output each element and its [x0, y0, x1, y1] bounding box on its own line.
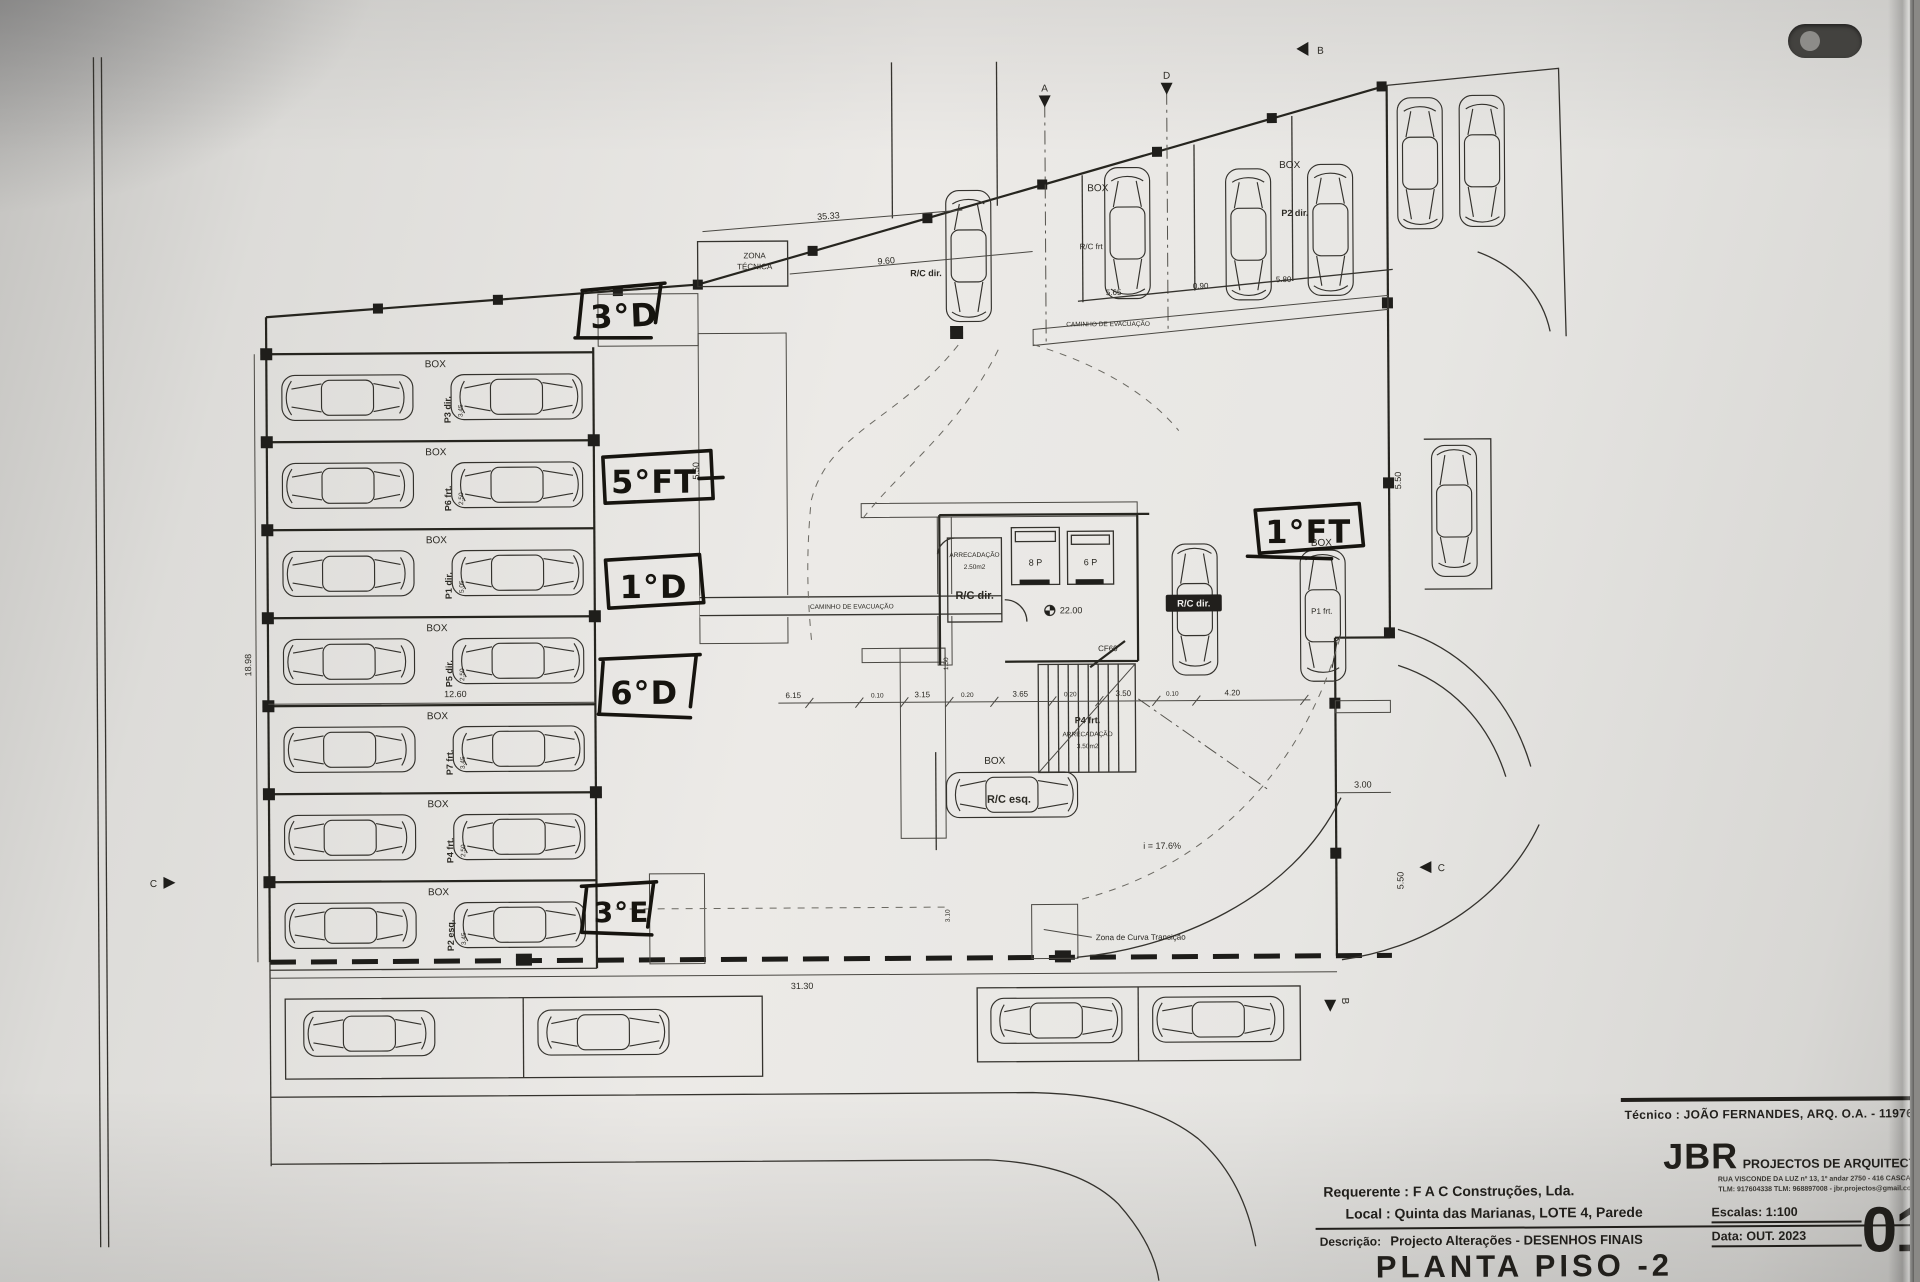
- svg-text:R/C dir.: R/C dir.: [955, 590, 994, 602]
- svg-text:12.60: 12.60: [444, 689, 467, 699]
- svg-text:R/C dir.: R/C dir.: [910, 268, 942, 278]
- svg-text:BOX: BOX: [984, 756, 1006, 767]
- scale-label: Escalas:: [1711, 1205, 1762, 1219]
- car-icon: [1226, 169, 1272, 300]
- svg-text:5.05: 5.05: [459, 580, 466, 593]
- lobby: 22.00 CF60: [1005, 599, 1125, 668]
- date-row: Data: OUT. 2023: [1712, 1229, 1862, 1248]
- svg-text:6 P: 6 P: [1084, 557, 1098, 567]
- car-icon: [282, 463, 413, 509]
- top-parking-block: R/C dir. BOX BOX R/C frt P2 dir. 5.65 0.…: [909, 68, 1566, 340]
- svg-text:18.98: 18.98: [243, 654, 253, 677]
- handwritten-1FT: 1°FT: [1247, 504, 1363, 560]
- svg-text:2.50: 2.50: [460, 844, 467, 857]
- svg-text:R/C frt: R/C frt: [1080, 242, 1104, 251]
- parking-row: BOX P7 frt. 3.45: [268, 704, 595, 776]
- svg-text:BOX: BOX: [428, 887, 450, 898]
- stairs: P4 frt. ARRECADAÇÃO 3.50m2: [1038, 664, 1136, 773]
- descricao-label: Descrição:: [1320, 1234, 1381, 1248]
- hole-punch: [1788, 24, 1862, 58]
- svg-text:3.45: 3.45: [460, 756, 467, 769]
- car-icon: [538, 1009, 669, 1055]
- svg-text:2.50m2: 2.50m2: [964, 564, 986, 571]
- photo-of-plan: ZONA TÉCNICA BOX P3 dir. 3.45 BOX P: [0, 0, 1920, 1282]
- floor-plan-drawing: ZONA TÉCNICA BOX P3 dir. 3.45 BOX P: [0, 0, 1920, 1282]
- svg-text:3.15: 3.15: [915, 690, 931, 699]
- car-icon: [452, 462, 583, 508]
- titleblock-tecnico: Técnico : JOÃO FERNANDES, ARQ. O.A. - 11…: [1621, 1096, 1917, 1122]
- car-icon: [284, 727, 415, 773]
- parking-row: BOX P3 dir. 3.45: [266, 352, 593, 424]
- descricao-row: Descrição: Projecto Alterações - DESENHO…: [1320, 1232, 1643, 1249]
- svg-text:3.45: 3.45: [458, 404, 465, 417]
- svg-text:3.00: 3.00: [1354, 779, 1372, 789]
- drive-guides: Zona de Curva Transição: [598, 343, 1342, 961]
- car-icon: [283, 639, 414, 685]
- svg-text:3°D: 3°D: [589, 295, 658, 336]
- svg-text:P1 dir.: P1 dir.: [444, 572, 454, 599]
- svg-text:5.65: 5.65: [1106, 288, 1122, 297]
- elevator-1: 8 P: [1011, 527, 1059, 584]
- svg-text:TÉCNICA: TÉCNICA: [737, 262, 773, 271]
- tecnico-name: JOÃO FERNANDES, ARQ.: [1684, 1107, 1838, 1122]
- car-icon: [284, 815, 415, 861]
- paper-curl-shadow: [1888, 0, 1914, 1282]
- titleblock-right: JBR PROJECTOS DE ARQUITECTURA RUA VISCON…: [1663, 1146, 1917, 1148]
- left-parking-block: BOX P3 dir. 3.45 BOX P6 frt. 2.50 BOX P1…: [260, 346, 603, 970]
- car-icon: [453, 726, 584, 772]
- svg-text:P3 dir.: P3 dir.: [442, 396, 452, 423]
- car-icon: [1153, 996, 1284, 1042]
- requerente-value: F A C Construções, Lda.: [1413, 1182, 1575, 1199]
- svg-text:0.10: 0.10: [871, 692, 884, 699]
- svg-text:B: B: [1317, 46, 1324, 57]
- svg-text:P7 frt.: P7 frt.: [445, 750, 455, 776]
- elevator-2: 6 P: [1067, 531, 1113, 584]
- svg-text:3.50: 3.50: [1116, 689, 1132, 698]
- svg-text:BOX: BOX: [425, 359, 447, 370]
- svg-text:0.20: 0.20: [1064, 691, 1077, 698]
- bottom-parking: [270, 986, 1302, 1282]
- svg-text:6°D: 6°D: [610, 674, 678, 712]
- svg-text:5.80: 5.80: [1276, 275, 1292, 284]
- svg-text:0.10: 0.10: [1166, 691, 1179, 698]
- local-value: Quinta das Marianas, LOTE 4, Parede: [1394, 1204, 1642, 1222]
- svg-text:B: B: [1339, 998, 1350, 1005]
- date-label: Data:: [1712, 1229, 1743, 1243]
- svg-text:ZONA: ZONA: [743, 251, 766, 260]
- handwritten-5FT: 5°FT: [603, 450, 723, 503]
- parking-row: BOX P1 dir. 5.05: [267, 528, 594, 600]
- svg-text:CAMINHO DE EVACUAÇÃO: CAMINHO DE EVACUAÇÃO: [1066, 319, 1150, 329]
- svg-text:BOX: BOX: [426, 535, 448, 546]
- svg-text:ARRECADAÇÃO: ARRECADAÇÃO: [949, 550, 999, 559]
- svg-text:Zona de Curva Transição: Zona de Curva Transição: [1096, 933, 1186, 943]
- parking-row: BOX P5 dir. 2.50: [268, 616, 595, 688]
- svg-text:R/C esq.: R/C esq.: [987, 794, 1031, 806]
- scale-row: Escalas: 1:100: [1711, 1205, 1861, 1224]
- car-icon: [1105, 167, 1151, 298]
- svg-text:8 P: 8 P: [1029, 557, 1043, 567]
- svg-text:C: C: [150, 879, 157, 890]
- svg-text:5.50: 5.50: [1393, 472, 1403, 490]
- car-icon: [1459, 95, 1505, 226]
- car-icon: [991, 998, 1122, 1044]
- svg-text:0.90: 0.90: [1193, 281, 1209, 290]
- parking-row: BOX P4 frt. 2.50: [269, 792, 596, 864]
- svg-text:P1 frt.: P1 frt.: [1311, 607, 1332, 616]
- handwritten-6D: 6°D: [598, 655, 700, 719]
- svg-text:P4 frt.: P4 frt.: [1075, 715, 1101, 725]
- svg-text:BOX: BOX: [427, 799, 449, 810]
- svg-text:ARRECADAÇÃO: ARRECADAÇÃO: [1062, 729, 1112, 738]
- svg-text:2.50: 2.50: [458, 492, 465, 505]
- svg-text:3°E: 3°E: [594, 896, 650, 929]
- drawing-sheet: ZONA TÉCNICA BOX P3 dir. 3.45 BOX P: [0, 0, 1920, 1282]
- car-icon: [454, 814, 585, 860]
- svg-text:3.65: 3.65: [1013, 690, 1029, 699]
- svg-text:P6 frt.: P6 frt.: [443, 486, 453, 512]
- ramp-hatching: [598, 289, 1392, 964]
- svg-text:C: C: [1438, 863, 1445, 874]
- car-icon: [454, 902, 585, 948]
- evacuation-corridor: CAMINHO DE EVACUAÇÃO CAMINHO DE EVACUAÇÃ…: [698, 319, 1152, 618]
- svg-text:P2 dir.: P2 dir.: [1281, 208, 1308, 218]
- local-label: Local :: [1345, 1205, 1390, 1221]
- local-row: Local : Quinta das Marianas, LOTE 4, Par…: [1345, 1204, 1642, 1222]
- descricao-value: Projecto Alterações - DESENHOS FINAIS: [1390, 1232, 1642, 1249]
- handwritten-3E: 3°E: [581, 882, 656, 935]
- svg-text:BOX: BOX: [425, 447, 447, 458]
- svg-text:6.15: 6.15: [786, 691, 802, 700]
- parking-row: BOX P2 esq. 3.45: [269, 880, 596, 952]
- svg-text:P2 esq.: P2 esq.: [446, 920, 456, 952]
- company-name: JBR: [1663, 1135, 1738, 1176]
- titleblock: Requerente : F A C Construções, Lda. Loc…: [1315, 1146, 1918, 1280]
- car-icon: [1397, 98, 1443, 229]
- svg-text:3.50m2: 3.50m2: [1077, 743, 1099, 750]
- svg-text:9.60: 9.60: [877, 255, 895, 266]
- car-icon: [1431, 445, 1477, 576]
- core: ARRECADAÇÃO 2.50m2 R/C dir. 8 P 6 P 22.0…: [937, 514, 1151, 773]
- svg-text:31.30: 31.30: [791, 981, 814, 991]
- car-icon: [451, 374, 582, 420]
- svg-text:0.20: 0.20: [961, 692, 974, 699]
- entrance-drive: [891, 61, 1168, 346]
- svg-text:5°FT: 5°FT: [611, 463, 697, 502]
- svg-text:D: D: [1163, 71, 1170, 82]
- svg-text:BOX: BOX: [426, 623, 448, 634]
- svg-text:1.50: 1.50: [943, 657, 950, 670]
- scale-value: 1:100: [1766, 1205, 1798, 1219]
- svg-text:BOX: BOX: [427, 711, 449, 722]
- company-logo: JBR PROJECTOS DE ARQUITECTURA: [1663, 1134, 1917, 1178]
- car-icon: [282, 375, 413, 421]
- svg-text:4.20: 4.20: [1225, 688, 1241, 697]
- svg-text:1°D: 1°D: [620, 568, 688, 606]
- car-icon: [453, 638, 584, 684]
- svg-text:P4 frt.: P4 frt.: [445, 838, 455, 864]
- svg-text:1°FT: 1°FT: [1265, 513, 1351, 552]
- sheet-frame: [93, 57, 108, 1247]
- sheet-title: PLANTA PISO -2: [1376, 1248, 1673, 1282]
- svg-text:35.33: 35.33: [817, 210, 840, 222]
- svg-text:5.50: 5.50: [1395, 872, 1405, 890]
- parking-row: BOX P6 frt. 2.50: [267, 440, 594, 512]
- svg-text:3.45: 3.45: [461, 932, 468, 945]
- handwritten-1D: 1°D: [605, 555, 703, 609]
- svg-text:P5 dir.: P5 dir.: [444, 660, 454, 687]
- svg-text:3.10: 3.10: [945, 909, 952, 922]
- svg-text:2.50: 2.50: [459, 668, 466, 681]
- date-value: OUT. 2023: [1746, 1229, 1806, 1243]
- car-icon: [285, 903, 416, 949]
- car-icon: [283, 551, 414, 597]
- car-icon: [304, 1011, 435, 1057]
- requerente-row: Requerente : F A C Construções, Lda.: [1323, 1182, 1574, 1200]
- requerente-label: Requerente :: [1323, 1183, 1409, 1200]
- svg-text:i = 17.6%: i = 17.6%: [1143, 841, 1181, 851]
- svg-text:A: A: [1041, 83, 1048, 94]
- svg-text:BOX: BOX: [1087, 183, 1109, 194]
- svg-text:22.00: 22.00: [1060, 605, 1083, 615]
- svg-text:R/C dir.: R/C dir.: [1177, 598, 1210, 609]
- svg-text:BOX: BOX: [1279, 160, 1301, 171]
- car-icon: [452, 550, 583, 596]
- tecnico-label: Técnico :: [1625, 1108, 1680, 1122]
